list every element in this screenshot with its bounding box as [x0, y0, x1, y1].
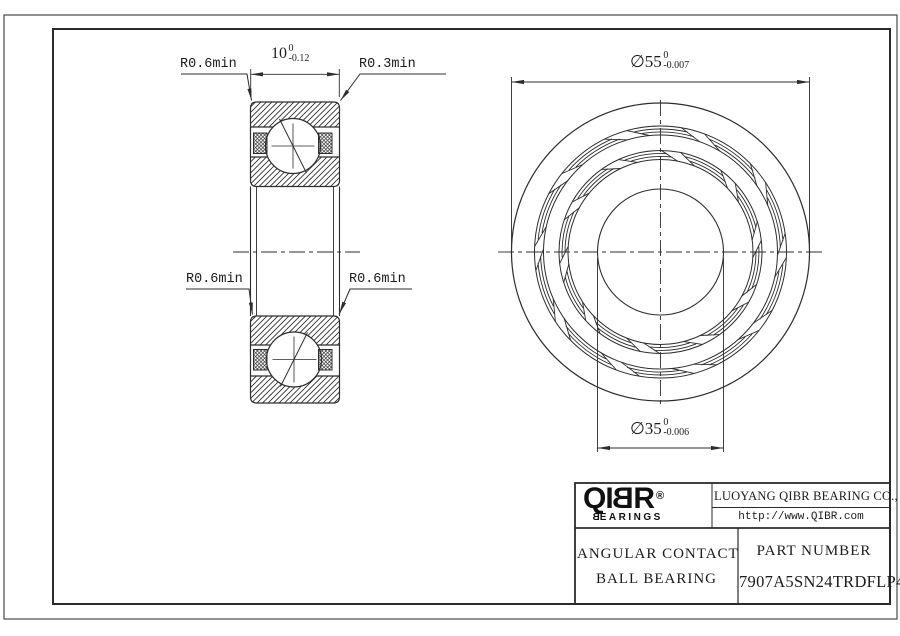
section-lower	[251, 316, 340, 403]
drawing-linework	[0, 0, 900, 636]
bore-diameter-value: ∅35	[630, 420, 662, 437]
section-upper	[251, 102, 340, 187]
product-type-line1: ANGULAR CONTACT	[577, 546, 736, 563]
outer-diameter-value: ∅55	[630, 53, 662, 70]
width-dimension-text: 10 0 -0.12	[271, 46, 309, 65]
company-name: LUOYANG QIBR BEARING CO., LTD	[714, 489, 888, 504]
radius-label-top-right: R0.3min	[359, 57, 416, 72]
engineering-drawing-page: R0.6min R0.3min R0.6min R0.6min 10 0 -0.…	[0, 0, 900, 636]
section-view	[233, 102, 360, 403]
part-number-label: PART NUMBER	[740, 543, 888, 560]
product-type-line2: BALL BEARING	[577, 571, 736, 588]
part-number-value: 7907A5SN24TRDFLP4	[739, 572, 889, 592]
registered-mark: ®	[656, 490, 664, 502]
ring-face-lines	[251, 187, 340, 317]
seal-right	[319, 133, 333, 154]
seal-right	[319, 350, 333, 371]
qibr-logo-subtext: BEARINGS	[590, 512, 663, 523]
bore-diameter-text: ∅35 0 -0.006	[630, 420, 689, 439]
radius-label-bottom-left: R0.6min	[186, 272, 243, 287]
radius-label-top-left: R0.6min	[180, 57, 237, 72]
bore-diameter-tolerance: 0 -0.006	[663, 418, 689, 437]
front-view	[498, 100, 823, 408]
seal-left	[254, 350, 268, 371]
seal-left	[254, 133, 268, 154]
width-value: 10	[271, 46, 287, 62]
outer-diameter-tolerance: 0 -0.007	[663, 51, 689, 70]
bore-edge-lines	[257, 187, 334, 317]
qibr-logo: QIBR®	[583, 486, 662, 512]
outer-diameter-text: ∅55 0 -0.007	[630, 53, 689, 72]
width-tolerance: 0 -0.12	[289, 44, 310, 63]
width-dimension	[251, 69, 340, 97]
company-website: http://www.QIBR.com	[714, 511, 888, 523]
radius-label-bottom-right: R0.6min	[349, 272, 406, 287]
